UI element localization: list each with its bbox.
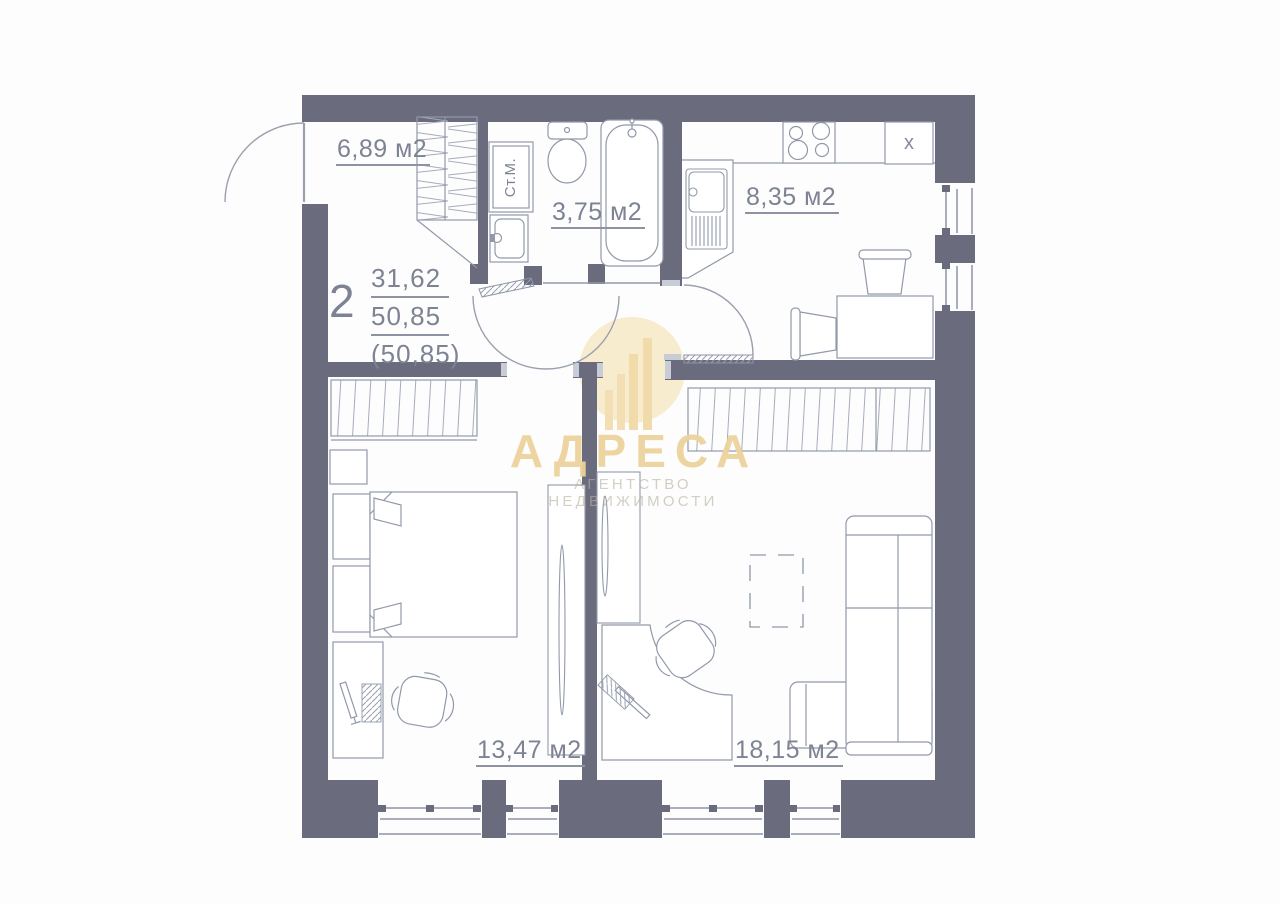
bathroom-area-label: 3,75 м2 — [551, 199, 645, 229]
apartment-areas: 31,62 50,85 (50,85) — [371, 263, 460, 370]
kitchen-cabinet-label: x — [885, 122, 933, 164]
entrance-door — [225, 123, 304, 202]
bedroom-wardrobe-icon — [331, 380, 477, 440]
kitchen-table-icon — [837, 296, 933, 358]
floor-plan: 6,89 м2 3,75 м2 8,35 м2 13,47 м2 18,15 м… — [0, 0, 1280, 904]
kitchen-chair-left-icon — [791, 308, 836, 360]
bedroom-chair-icon — [388, 668, 459, 731]
toilet-icon — [548, 122, 587, 183]
sofa-icon — [790, 516, 932, 755]
watermark-tagline: АГЕНТСТВО НЕДВИЖИМОСТИ — [488, 476, 778, 510]
bathtub-icon — [601, 119, 663, 266]
apartment-rooms-count: 2 — [329, 274, 355, 328]
kitchen-chair-top-icon — [859, 250, 911, 294]
living-room-area-label: 18,15 м2 — [734, 737, 843, 767]
hallway-area-label: 6,89 м2 — [336, 136, 430, 166]
bedroom-area-label: 13,47 м2 — [476, 737, 585, 767]
apartment-total-area: 50,85 — [371, 298, 449, 336]
side-table-icon — [750, 555, 803, 627]
kitchen-area-label: 8,35 м2 — [745, 184, 839, 214]
stove-icon — [783, 122, 835, 163]
apartment-living-area: 31,62 — [371, 263, 449, 298]
washing-machine-label: Ст.М. — [489, 142, 533, 212]
bedroom-desk-icon — [333, 642, 383, 758]
kitchen-sink-icon — [686, 169, 727, 249]
bathroom-sink-icon — [490, 215, 528, 262]
watermark-brand: АДРЕСА — [497, 424, 771, 478]
apartment-total-area-note: (50,85) — [371, 336, 460, 370]
kitchen-door — [684, 285, 753, 363]
